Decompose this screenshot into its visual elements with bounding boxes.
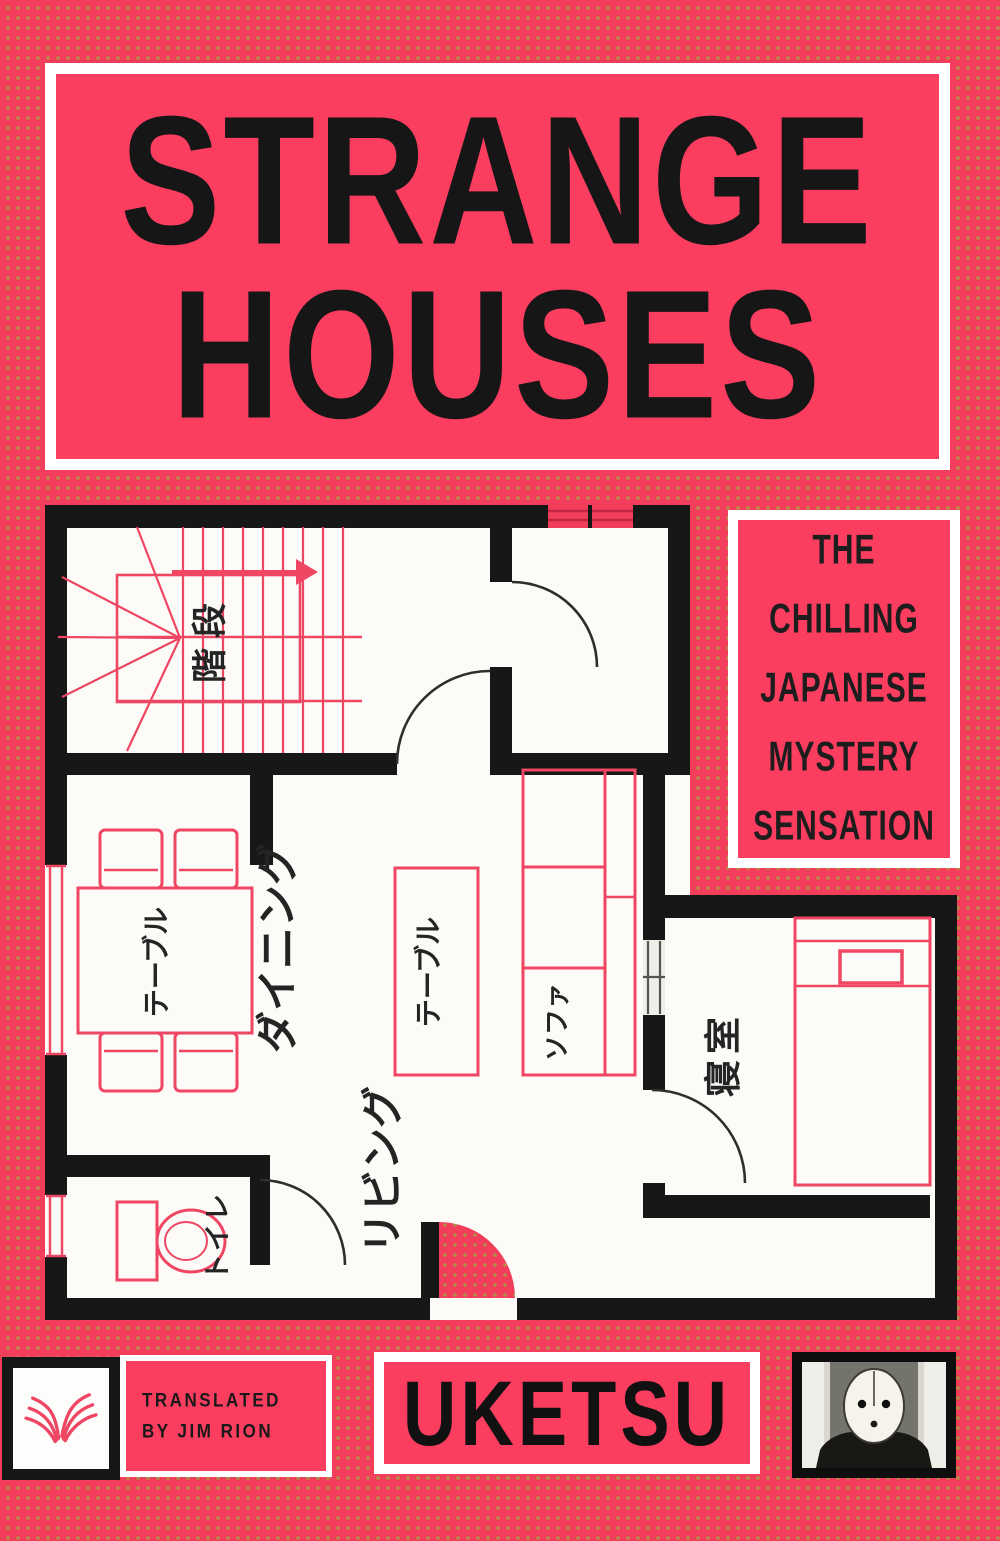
dining-table-label: テーブル — [140, 907, 173, 1017]
title-line-1: STRANGE — [120, 88, 874, 271]
tagline-line: JAPANESE — [753, 655, 935, 724]
living-label: リビング — [358, 1086, 407, 1254]
tagline-line: THE — [753, 517, 935, 586]
title-line-2: HOUSES — [172, 262, 823, 445]
tagline-line: MYSTERY — [753, 724, 935, 793]
book-cover: 階段 テーブル ダイニング テーブル ソファ リビング 寝室 トイレ STRAN… — [0, 0, 1000, 1541]
dining-label: ダイニング — [253, 843, 302, 1053]
open-book-logo — [21, 1386, 101, 1452]
translator-panel: TRANSLATED BY JIM RION — [120, 1355, 332, 1477]
author-name: UKETSU — [403, 1360, 731, 1465]
stairs-label: 階段 — [190, 593, 231, 683]
tagline-line: CHILLING — [753, 586, 935, 655]
author-panel: UKETSU — [374, 1352, 760, 1474]
publisher-logo-box — [2, 1357, 120, 1480]
translator-line-1: TRANSLATED — [142, 1383, 326, 1418]
bedroom-label: 寝室 — [702, 1011, 745, 1097]
tagline-panel: THE CHILLING JAPANESE MYSTERY SENSATION — [728, 510, 960, 868]
masked-face-portrait — [802, 1362, 946, 1468]
living-table-label: テーブル — [412, 917, 445, 1027]
sofa-label: ソファ — [543, 983, 573, 1061]
tagline-line: SENSATION — [753, 793, 935, 862]
title-panel: STRANGE HOUSES — [45, 63, 950, 470]
window-toilet-left — [45, 1195, 67, 1257]
window-bedroom-wall — [643, 940, 665, 1015]
toilet-label: トイレ — [203, 1191, 234, 1281]
author-photo — [792, 1352, 956, 1478]
window-top — [548, 505, 633, 528]
window-dining-left — [45, 865, 67, 1055]
entrance-door-leaf — [421, 1222, 439, 1298]
translator-line-2: BY JIM RION — [142, 1414, 326, 1449]
